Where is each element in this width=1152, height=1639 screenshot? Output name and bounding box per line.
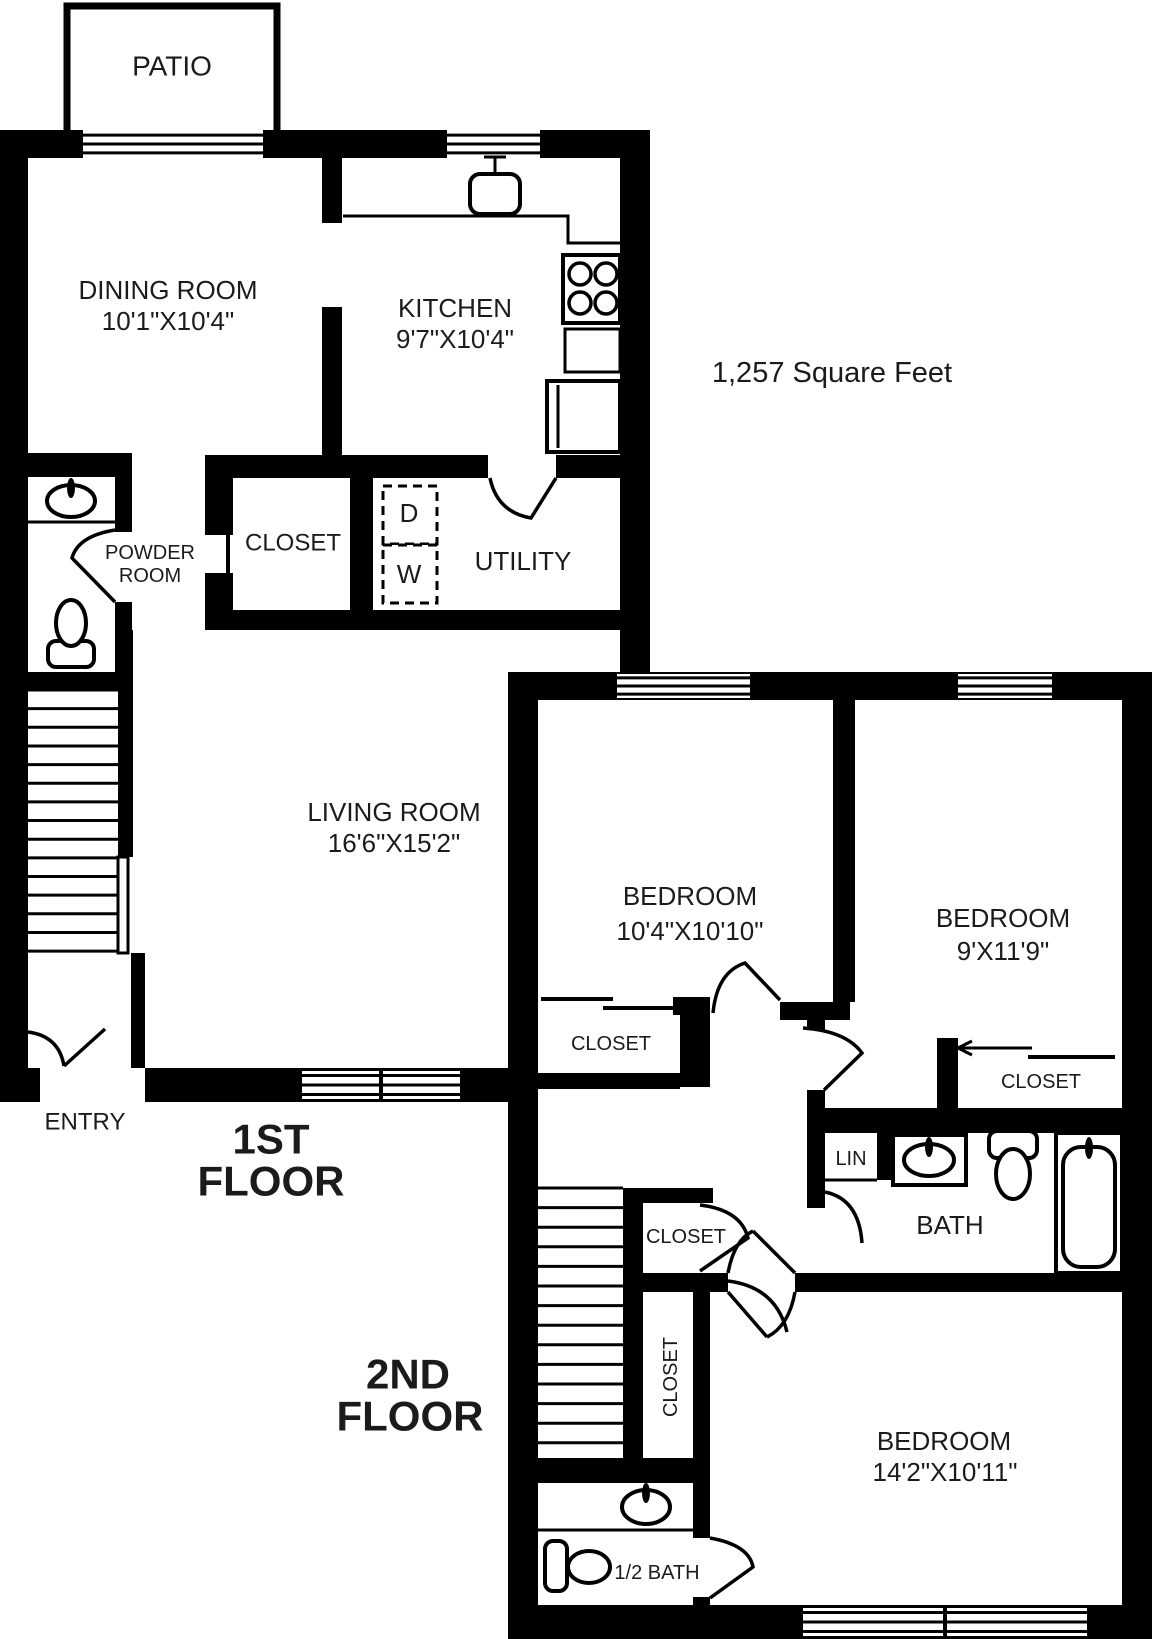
label-bedroom-3: BEDROOM (877, 1426, 1011, 1456)
wall (1122, 700, 1152, 1605)
label-powder-room-line1: POWDER (105, 542, 195, 564)
label-powder-room-line2: ROOM (119, 565, 181, 587)
wall (693, 1273, 710, 1538)
hall-upper-door (728, 1231, 795, 1273)
half-bath-sink (642, 1483, 650, 1503)
wall (205, 478, 233, 535)
wall (833, 700, 855, 1002)
kitchen-sink (470, 174, 520, 214)
label-lin: LIN (835, 1148, 866, 1170)
powder-room-sink (67, 478, 75, 498)
bedroom-1-door (713, 963, 780, 1013)
wall (693, 1597, 710, 1610)
wall (877, 1133, 893, 1180)
wall (25, 672, 120, 690)
half-bath-toilet (568, 1551, 610, 1583)
bath-door (825, 1192, 862, 1243)
wall (118, 630, 133, 857)
wall (0, 130, 28, 1068)
wall (620, 130, 650, 672)
wall (780, 1002, 850, 1020)
label-dryer: D (400, 498, 419, 528)
wall (205, 455, 488, 478)
wall (350, 478, 373, 610)
label-first-floor-line1: 1ST (232, 1116, 309, 1163)
label-utility: UTILITY (475, 546, 572, 576)
wall (131, 953, 145, 1068)
wall (825, 1108, 1124, 1133)
label-square-feet: 1,257 Square Feet (712, 357, 952, 389)
label-bedroom-2: BEDROOM (936, 903, 1070, 933)
wall (807, 1090, 825, 1208)
wall (205, 610, 650, 630)
bath-vanity-sink (925, 1137, 933, 1157)
label-bedroom-1-dims: 10'4"X10'10" (617, 916, 764, 946)
wall (538, 1073, 680, 1089)
label-living-room-dims: 16'6"X15'2" (328, 828, 461, 858)
floor-plan-svg: PATIODINING ROOM10'1"X10'4"KITCHEN9'7"X1… (0, 0, 1152, 1639)
wall (623, 1188, 643, 1470)
label-bedroom-2-dims: 9'X11'9" (957, 936, 1049, 966)
bedroom-2-door (803, 1028, 862, 1090)
label-kitchen-dims: 9'7"X10'4" (396, 324, 514, 354)
label-closet-hall: CLOSET (646, 1226, 726, 1248)
kitchen-counter (343, 216, 620, 243)
entry-door (28, 1029, 105, 1066)
wall (263, 130, 447, 158)
half-bath-door (710, 1538, 753, 1598)
label-closet-bedroom-1: CLOSET (571, 1033, 651, 1055)
wall (623, 1273, 728, 1292)
label-bedroom-3-dims: 14'2"X10'11" (872, 1457, 1017, 1487)
label-patio: PATIO (132, 51, 212, 82)
wall (680, 1015, 710, 1087)
stair-railing (118, 857, 128, 953)
half-bath-toilet (545, 1541, 567, 1591)
wall (322, 307, 342, 455)
bath-toilet (996, 1149, 1030, 1199)
wall (508, 672, 1152, 700)
powder-room-door (72, 530, 115, 602)
wall (205, 573, 233, 610)
wall (508, 700, 538, 1605)
wall (322, 158, 342, 223)
label-second-floor-line1: 2ND (366, 1351, 450, 1398)
wall (937, 1038, 958, 1110)
bathtub (1085, 1137, 1093, 1159)
label-half-bath: 1/2 BATH (614, 1562, 699, 1584)
label-dining-room-dims: 10'1"X10'4" (102, 306, 235, 336)
label-second-floor-line2: FLOOR (337, 1393, 484, 1440)
label-kitchen: KITCHEN (398, 293, 512, 323)
wall (25, 453, 132, 477)
label-dining-room: DINING ROOM (78, 275, 257, 305)
label-entry: ENTRY (45, 1109, 126, 1136)
wall (673, 997, 710, 1015)
wall (115, 477, 132, 532)
wall (795, 1273, 1124, 1292)
label-closet-bedroom-2: CLOSET (1001, 1071, 1081, 1093)
label-bedroom-1: BEDROOM (623, 881, 757, 911)
wall (623, 1188, 713, 1203)
floor-plan: PATIODINING ROOM10'1"X10'4"KITCHEN9'7"X1… (0, 0, 1152, 1639)
kitchen-counter-cabinet (565, 329, 620, 372)
label-living-room: LIVING ROOM (307, 797, 480, 827)
wall (0, 1068, 40, 1102)
wall (556, 455, 620, 478)
powder-room-toilet (56, 600, 86, 646)
bathtub (1063, 1147, 1115, 1267)
label-washer: W (397, 559, 422, 589)
utility-door (490, 478, 556, 518)
label-bath: BATH (916, 1210, 983, 1240)
label-first-floor-line2: FLOOR (198, 1158, 345, 1205)
label-closet-hall-vertical: CLOSET (660, 1337, 682, 1417)
label-closet-1st: CLOSET (245, 530, 341, 557)
